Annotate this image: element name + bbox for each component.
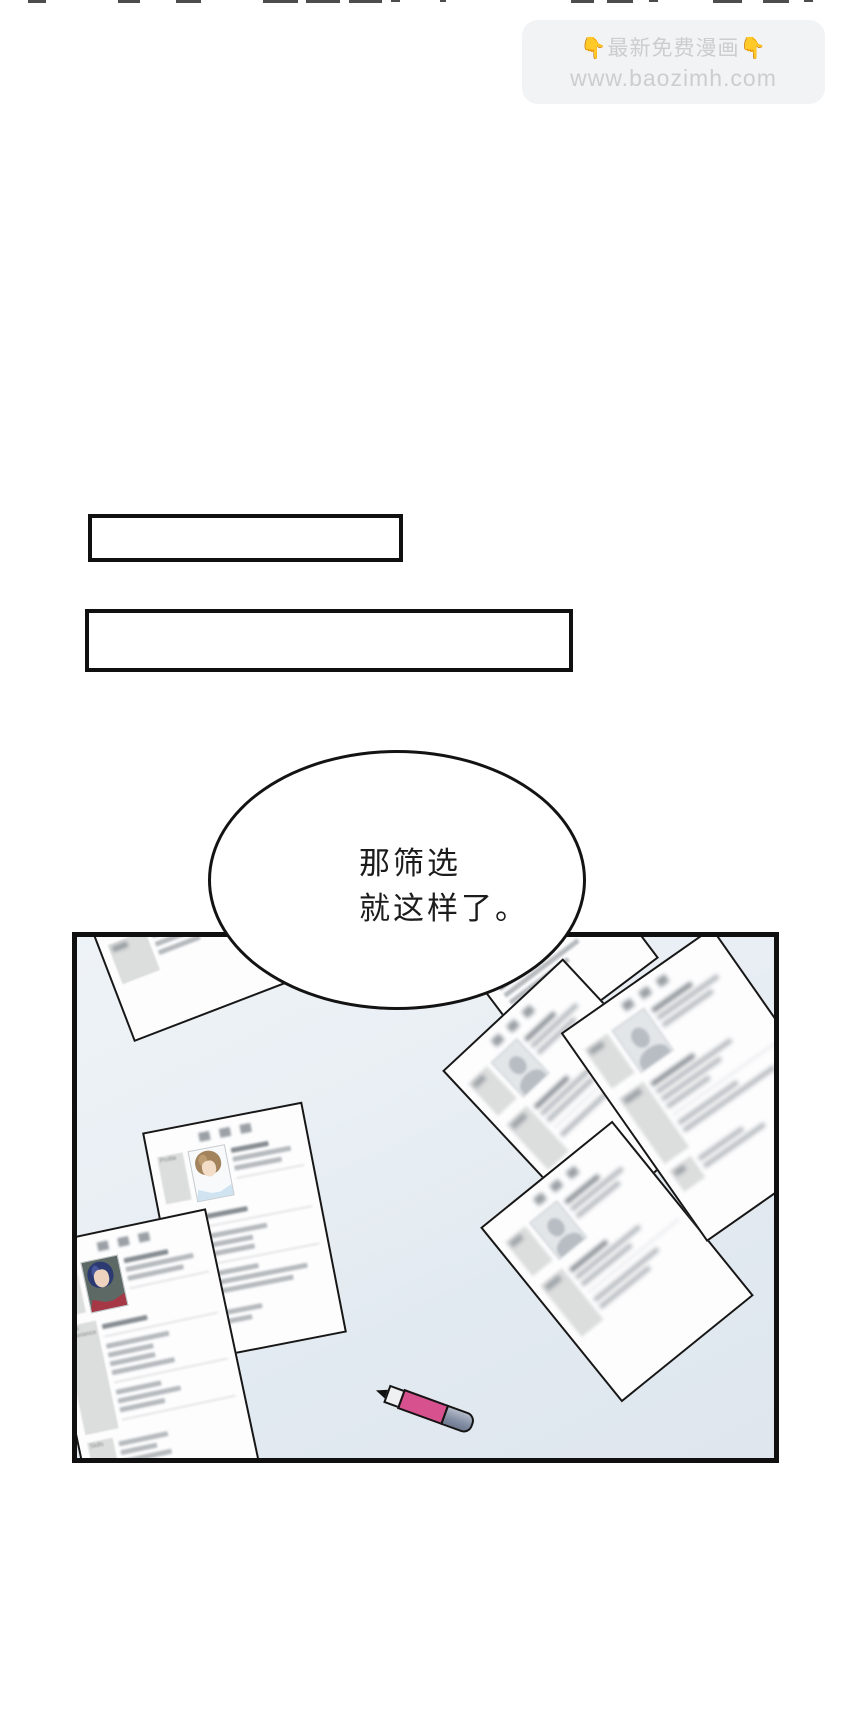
artifact-dash <box>649 0 658 2</box>
applicant-photo-woman <box>80 1255 128 1314</box>
resume-lines <box>561 1148 642 1222</box>
artifact-dash <box>571 0 594 3</box>
speech-bubble-text: 那筛选 就这样了。 <box>359 841 529 931</box>
speech-line-2: 就这样了。 <box>359 886 529 931</box>
marker-pen <box>373 1380 477 1435</box>
artifact-dash <box>391 0 400 2</box>
artifact-dash <box>804 0 813 2</box>
artifact-dash <box>176 0 201 3</box>
speech-bubble: 那筛选 就这样了。 <box>208 750 586 1010</box>
caption-box-small <box>88 514 403 562</box>
desk-panel: Profile Work Experience Skills <box>72 932 779 1463</box>
artifact-dash <box>263 0 298 3</box>
applicant-photo-man <box>187 1144 234 1202</box>
resume-lines <box>230 1130 306 1185</box>
speech-line-1: 那筛选 <box>359 841 529 886</box>
caption-box-large <box>85 609 573 672</box>
artifact-dash <box>713 0 742 3</box>
artifact-dash <box>28 0 46 3</box>
resume-lines <box>205 1189 326 1298</box>
artifact-dash <box>349 0 382 3</box>
artifact-dash <box>118 0 140 3</box>
comic-page: 👇最新免费漫画👇 www.baozimh.com <box>0 0 850 1721</box>
artifact-dash <box>440 0 446 2</box>
resume-lines <box>101 1295 237 1427</box>
watermark-slogan: 👇最新免费漫画👇 <box>580 32 766 62</box>
site-watermark: 👇最新免费漫画👇 www.baozimh.com <box>522 20 825 104</box>
resume-label-skills: Skills <box>87 1438 119 1463</box>
resume-label-box <box>108 932 160 984</box>
resume-lines <box>122 1237 210 1296</box>
artifact-dash <box>306 0 340 3</box>
resume-label-profile: Profile <box>157 1152 192 1204</box>
artifact-dash <box>763 0 789 3</box>
pen-cap <box>440 1405 476 1435</box>
resume-lines <box>648 955 738 1031</box>
watermark-url: www.baozimh.com <box>570 65 777 92</box>
artifact-dash <box>607 0 633 3</box>
